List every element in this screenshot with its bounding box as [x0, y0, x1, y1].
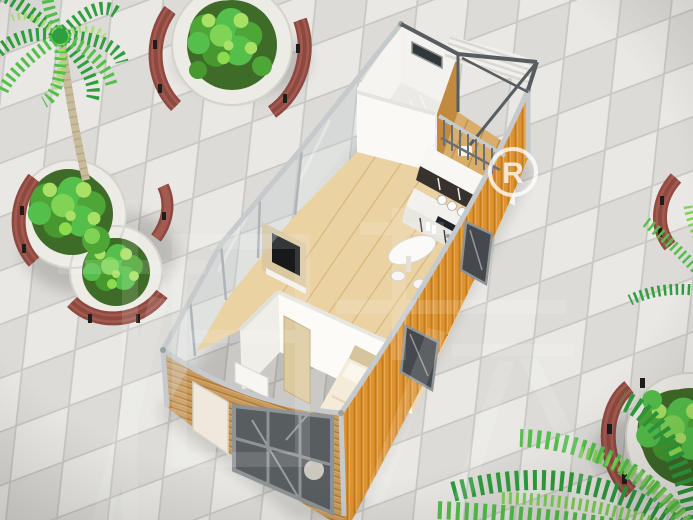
- scene: R: [0, 0, 693, 520]
- vignette: [0, 0, 693, 520]
- render-image: 柜族: [0, 0, 693, 520]
